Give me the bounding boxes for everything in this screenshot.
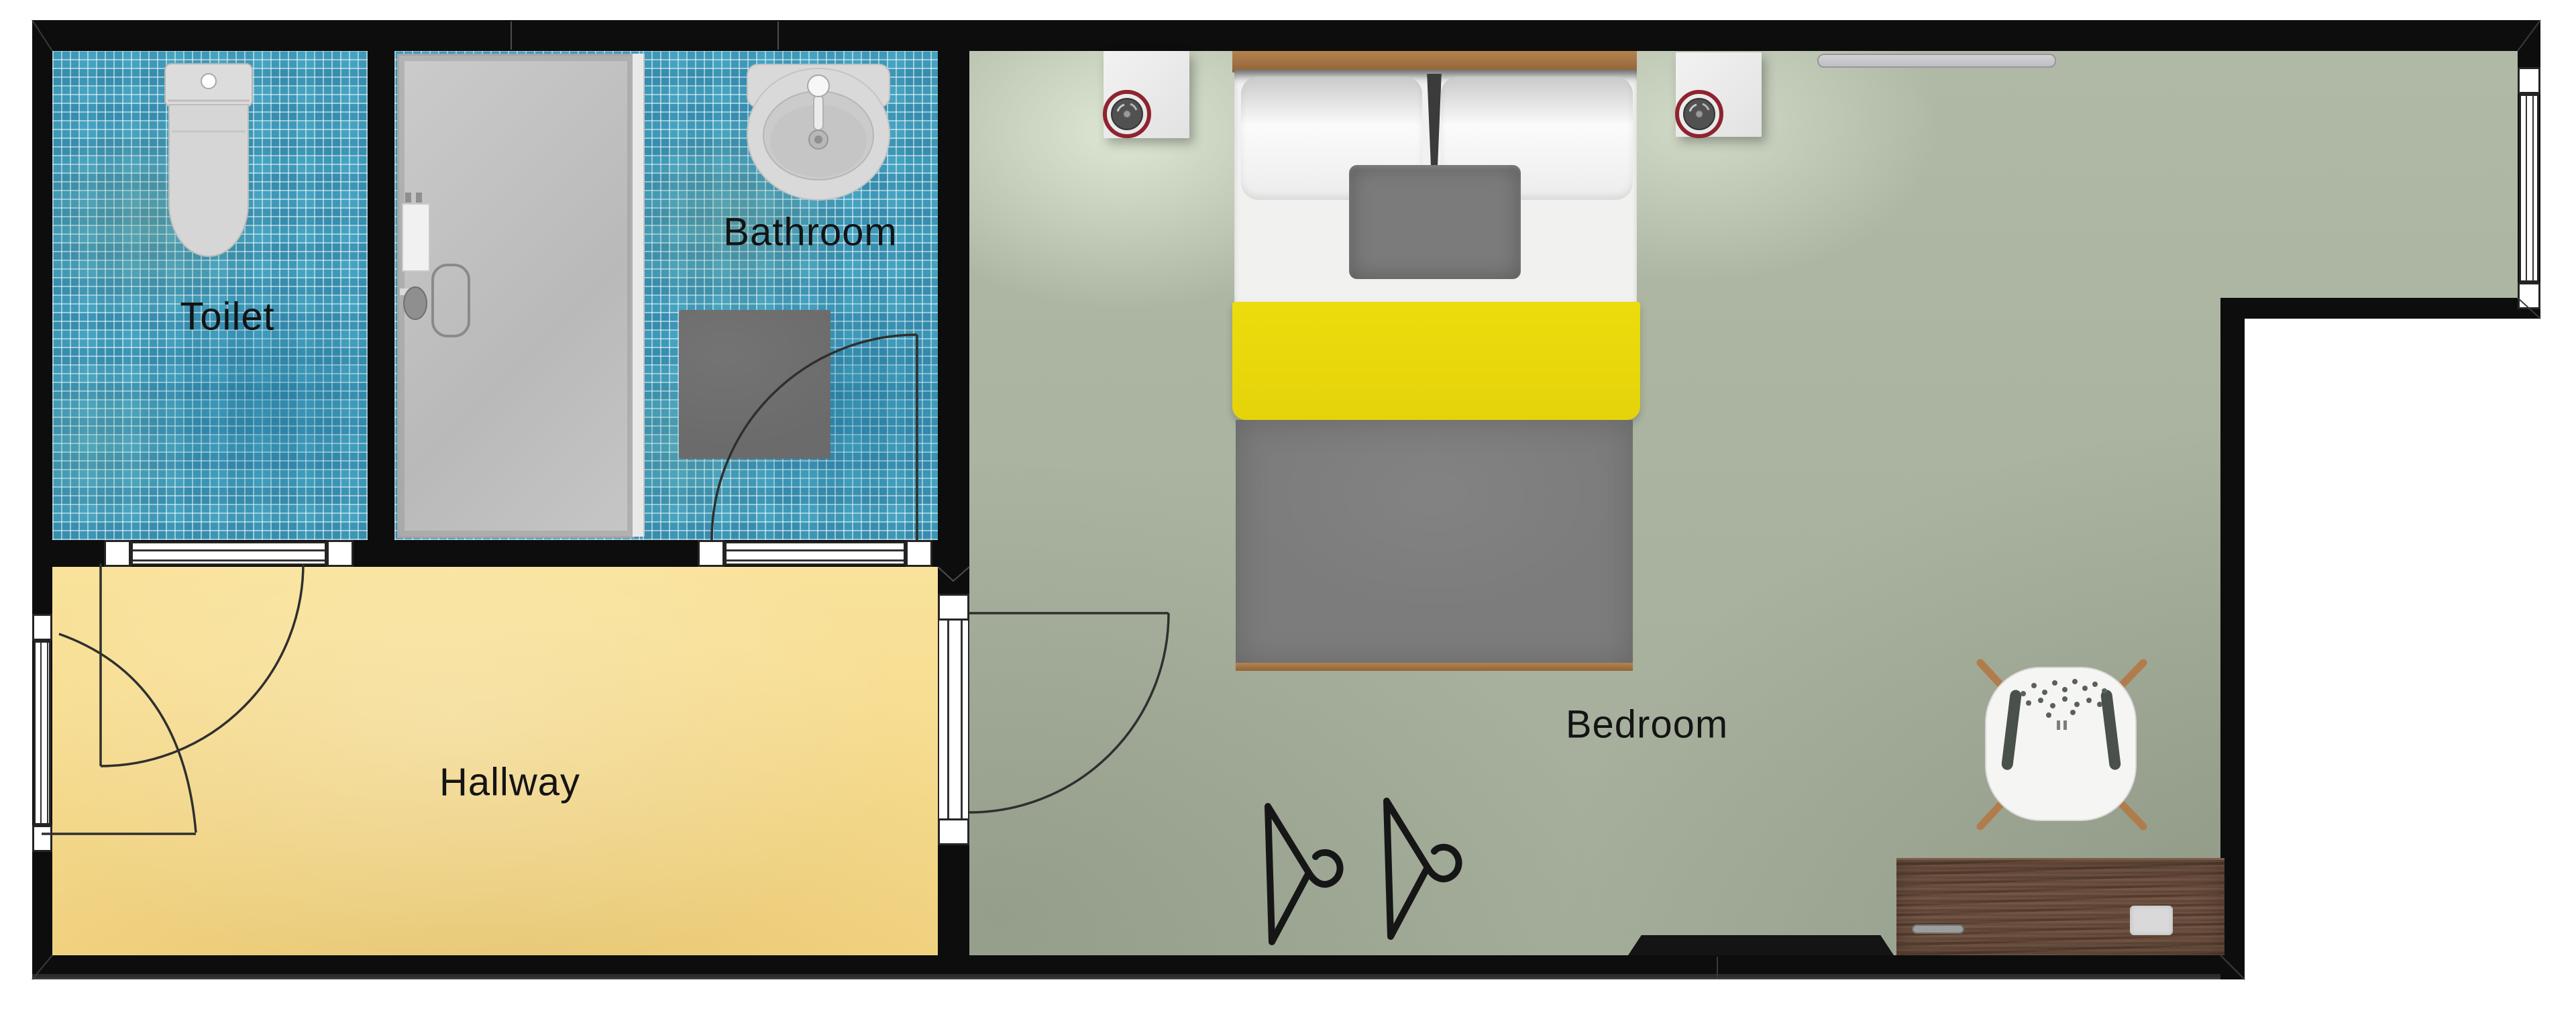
exterior-mask	[2245, 319, 2576, 1019]
right-window	[2519, 94, 2539, 282]
desk	[1896, 858, 2224, 955]
tv-unit	[1628, 935, 1894, 955]
nightstand-right	[1676, 52, 1762, 137]
left-window-sill-bottom	[32, 825, 52, 852]
bed-yellow-runner	[1232, 302, 1640, 420]
toilet-window-sill-left	[104, 540, 131, 567]
nightstand-left	[1104, 51, 1189, 138]
bathroom-window	[724, 541, 906, 566]
wall-step-horizontal	[2220, 298, 2540, 319]
floor-plan: Toilet Bathroom Hallway Bedroom	[0, 0, 2576, 1019]
wall-top	[32, 20, 2540, 51]
bathroom-label: Bathroom	[723, 210, 897, 255]
wall-shelf	[1817, 54, 2056, 68]
hallway-label: Hallway	[439, 760, 580, 805]
bathroom-floor	[643, 51, 938, 540]
left-window-sill-top	[32, 614, 52, 641]
shower-tray	[397, 54, 635, 538]
desk-pad	[2130, 906, 2173, 935]
bedroom-label: Bedroom	[1566, 702, 1728, 747]
bed-gray-blanket	[1236, 420, 1633, 665]
toilet-window	[131, 541, 327, 566]
bathroom-window-sill-left	[698, 540, 724, 567]
right-window-sill-bottom	[2518, 282, 2540, 309]
wall-bottom	[32, 955, 2245, 979]
toilet-window-sill-right	[327, 540, 354, 567]
bed-footboard	[1236, 663, 1633, 671]
bathroom-window-sill-right	[906, 540, 932, 567]
shower-glass	[631, 54, 645, 537]
bed-accent-pillow	[1349, 165, 1521, 279]
desk-drawer-handle	[1912, 924, 1964, 934]
right-window-sill-top	[2518, 67, 2540, 94]
bedroom-door-sill-top	[938, 594, 969, 621]
left-window	[34, 641, 51, 825]
bedroom-door-sill-bottom	[938, 818, 969, 845]
toilet-label: Toilet	[180, 294, 274, 339]
bath-mat	[679, 310, 830, 459]
bedroom-door-opening	[938, 594, 969, 845]
wall-toilet-shower	[368, 51, 394, 567]
